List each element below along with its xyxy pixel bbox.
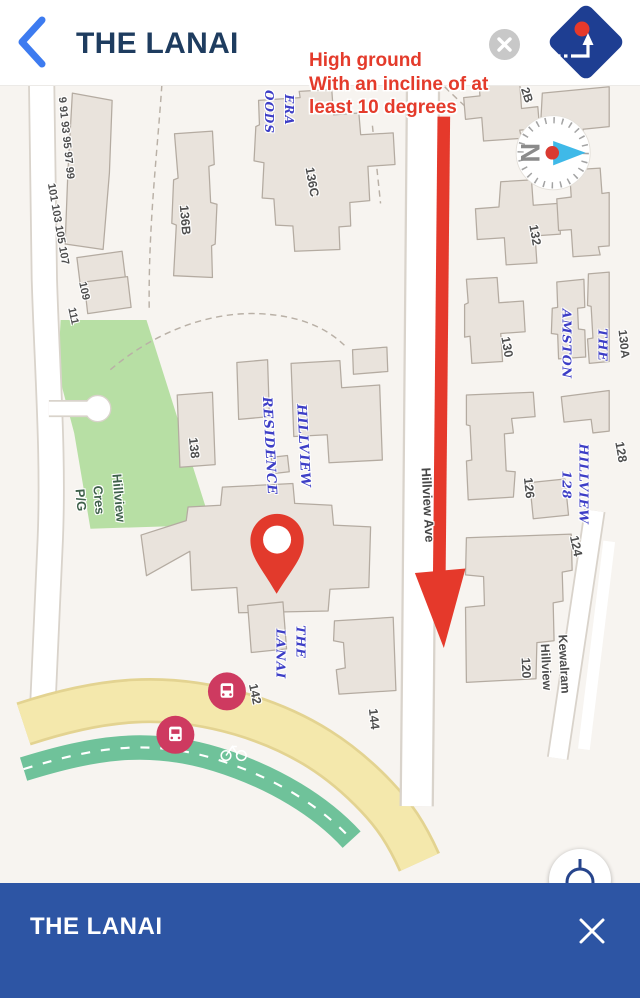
hillview-ave-road — [417, 85, 423, 806]
bus-stop-icon[interactable] — [156, 716, 194, 754]
compass-north-letter: N — [515, 143, 546, 163]
app-logo-diamond-icon — [544, 0, 628, 84]
header: THE LANAI — [0, 0, 640, 86]
back-button[interactable] — [12, 15, 50, 69]
page-title: THE LANAI — [76, 27, 239, 61]
bottom-sheet-close-button[interactable] — [576, 915, 608, 947]
map-viewport[interactable]: N 9 91 93 95 97 99101 103 105 1071091111… — [0, 85, 640, 883]
close-x-icon — [576, 915, 608, 947]
bus-stop-icon[interactable] — [208, 672, 246, 710]
bottom-sheet: THE LANAI — [0, 883, 640, 998]
map-canvas[interactable]: N — [0, 85, 640, 883]
app-logo[interactable] — [544, 0, 628, 84]
back-chevron-icon — [12, 15, 50, 69]
clear-search-button[interactable] — [489, 29, 520, 60]
bottom-sheet-title: THE LANAI — [30, 913, 163, 941]
compass-rose-icon[interactable]: N — [515, 116, 590, 190]
app-screen: N 9 91 93 95 97 99101 103 105 1071091111… — [0, 0, 640, 998]
close-icon — [489, 29, 520, 60]
